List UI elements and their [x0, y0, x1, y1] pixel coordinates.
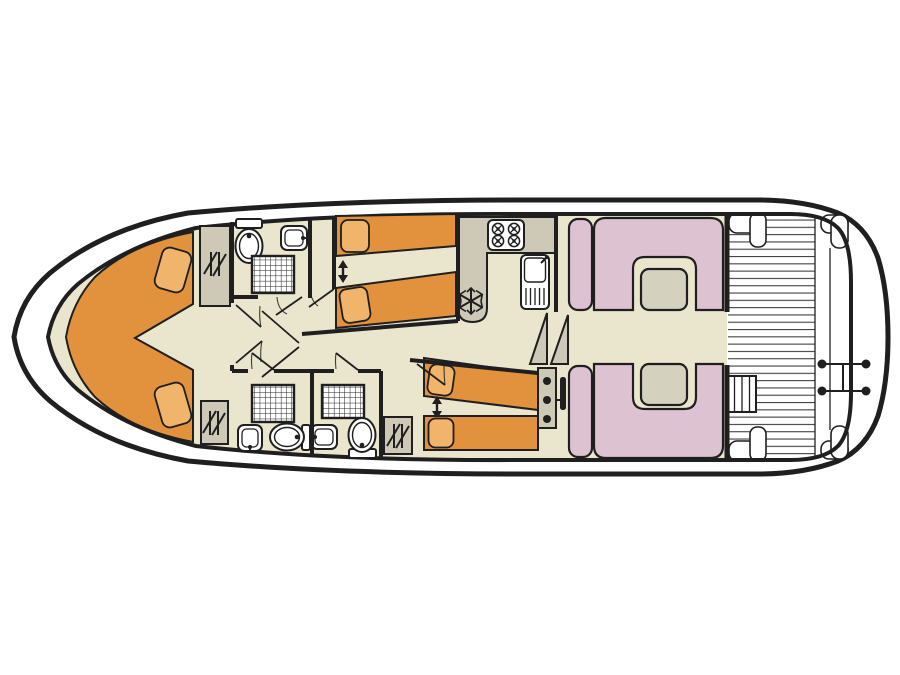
- deck-steps: [727, 376, 756, 412]
- toilet-icon: [270, 424, 304, 451]
- floor-plan-drawing: [0, 0, 900, 675]
- shower-icon: [322, 385, 364, 418]
- burner-icon: [492, 223, 503, 234]
- washbasin-icon: [281, 226, 308, 250]
- toilet-icon: [349, 418, 376, 452]
- toilet-cistern: [236, 219, 262, 228]
- pillow: [429, 419, 454, 448]
- wardrobe-aft: [384, 417, 412, 454]
- burner-icon: [508, 235, 519, 246]
- wardrobe-bow-top: [200, 226, 230, 306]
- shower-icon: [252, 256, 294, 293]
- pillow: [341, 220, 369, 252]
- burner-icon: [508, 223, 519, 234]
- steering-wheel-icon: [560, 377, 566, 410]
- washbasin-icon: [311, 425, 338, 449]
- boat-floor-plan: [0, 0, 900, 675]
- burner-icon: [492, 235, 503, 246]
- washbasin-icon: [238, 425, 262, 452]
- side-seat-bottom: [569, 366, 592, 457]
- wardrobe-bow-bottom: [201, 401, 228, 444]
- deck-planking: [728, 217, 815, 457]
- pillow: [427, 363, 456, 396]
- galley-sink: [521, 255, 549, 309]
- saloon-table-bottom: [641, 364, 687, 405]
- side-seat-top: [569, 219, 592, 310]
- saloon-table-top: [641, 269, 687, 310]
- shower-icon: [252, 385, 294, 422]
- stove: [488, 220, 524, 250]
- pillow: [339, 286, 372, 324]
